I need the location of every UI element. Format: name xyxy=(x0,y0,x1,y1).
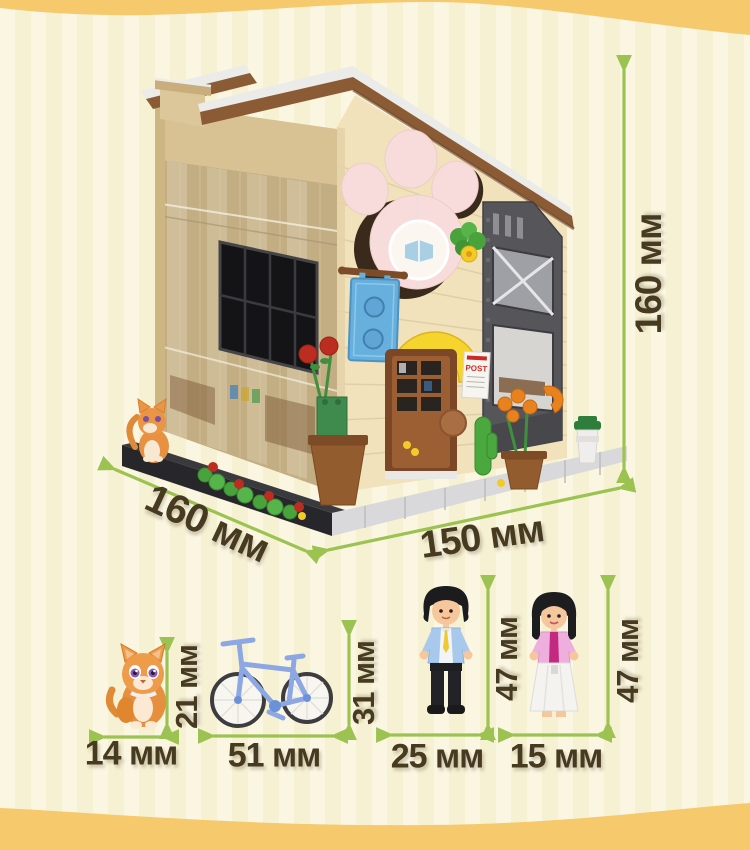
bicycle-figure xyxy=(205,628,340,732)
woman-height-label: 47 мм xyxy=(610,619,646,703)
cat-figure xyxy=(103,640,183,732)
bicycle-width-label: 51 мм xyxy=(228,737,321,776)
bottom-wave-band xyxy=(0,800,750,850)
top-wave-band xyxy=(0,0,750,45)
bicycle-height-label: 31 мм xyxy=(346,641,382,725)
woman-minifigure xyxy=(518,588,590,723)
cat-width-label: 14 мм xyxy=(85,735,178,774)
man-width-label: 25 мм xyxy=(391,738,484,777)
right-annex xyxy=(483,202,562,455)
man-minifigure xyxy=(410,584,482,726)
door-knob xyxy=(440,410,466,436)
woman-width-label: 15 мм xyxy=(510,738,603,777)
post-sign: POST xyxy=(462,351,490,398)
product-dimensions-image: POST xyxy=(0,0,750,850)
building-height-label: 160 мм xyxy=(628,214,670,335)
svg-text:POST: POST xyxy=(465,363,487,373)
door xyxy=(385,349,466,479)
left-glass-wall xyxy=(155,103,337,493)
